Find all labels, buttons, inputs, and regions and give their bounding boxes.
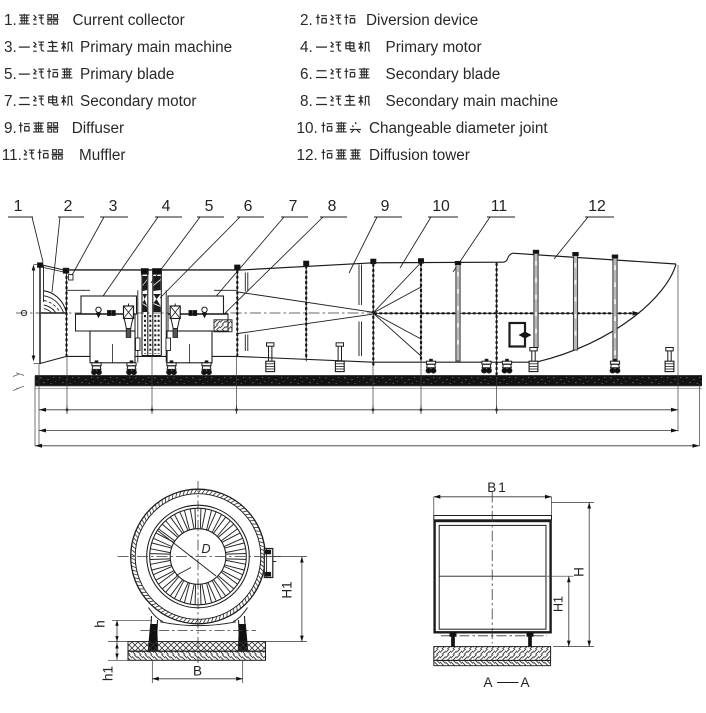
svg-text:h1: h1 — [101, 666, 116, 681]
svg-text:B1: B1 — [487, 480, 508, 495]
svg-text:5.: 5. — [4, 66, 17, 83]
svg-text:3.: 3. — [4, 39, 17, 56]
svg-text:6.: 6. — [300, 66, 313, 83]
svg-text:11.: 11. — [2, 147, 22, 164]
svg-text:8.: 8. — [300, 93, 313, 110]
svg-text:2: 2 — [64, 198, 73, 215]
svg-text:Diversion device: Diversion device — [366, 12, 478, 29]
svg-text:10.: 10. — [297, 120, 318, 137]
svg-text:B: B — [193, 664, 202, 679]
svg-text:12.: 12. — [297, 147, 318, 164]
svg-text:9: 9 — [381, 198, 390, 215]
svg-text:2.: 2. — [300, 12, 313, 29]
svg-text:Muffler: Muffler — [79, 147, 125, 164]
svg-text:7: 7 — [289, 198, 298, 215]
svg-text:3: 3 — [109, 198, 118, 215]
svg-text:7.: 7. — [4, 93, 17, 110]
svg-text:Secondary main machine: Secondary main machine — [386, 93, 559, 110]
svg-text:H1: H1 — [280, 581, 295, 598]
svg-text:A: A — [520, 675, 529, 690]
svg-text:D: D — [202, 542, 211, 556]
svg-text:Primary main machine: Primary main machine — [80, 39, 232, 56]
svg-text:Secondary blade: Secondary blade — [386, 66, 501, 83]
svg-text:4.: 4. — [300, 39, 313, 56]
svg-text:5: 5 — [205, 198, 214, 215]
svg-text:Diffusion tower: Diffusion tower — [369, 147, 470, 164]
svg-text:h: h — [93, 620, 108, 628]
svg-text:12: 12 — [588, 198, 606, 215]
svg-text:8: 8 — [328, 198, 337, 215]
svg-text:10: 10 — [432, 198, 450, 215]
svg-text:Diffuser: Diffuser — [72, 120, 124, 137]
svg-text:Primary motor: Primary motor — [386, 39, 482, 56]
svg-text:Current collector: Current collector — [73, 12, 185, 29]
svg-text:Primary blade: Primary blade — [80, 66, 174, 83]
svg-text:6: 6 — [244, 198, 253, 215]
svg-text:1: 1 — [14, 198, 23, 215]
svg-text:4: 4 — [162, 198, 171, 215]
svg-text:Changeable diameter joint: Changeable diameter joint — [369, 120, 548, 137]
svg-text:11: 11 — [491, 198, 508, 215]
svg-text:H1: H1 — [552, 596, 566, 612]
svg-text:A: A — [483, 675, 492, 690]
svg-text:9.: 9. — [4, 120, 17, 137]
svg-text:1.: 1. — [4, 12, 17, 29]
svg-text:H: H — [572, 567, 587, 577]
svg-text:Secondary motor: Secondary motor — [80, 93, 196, 110]
